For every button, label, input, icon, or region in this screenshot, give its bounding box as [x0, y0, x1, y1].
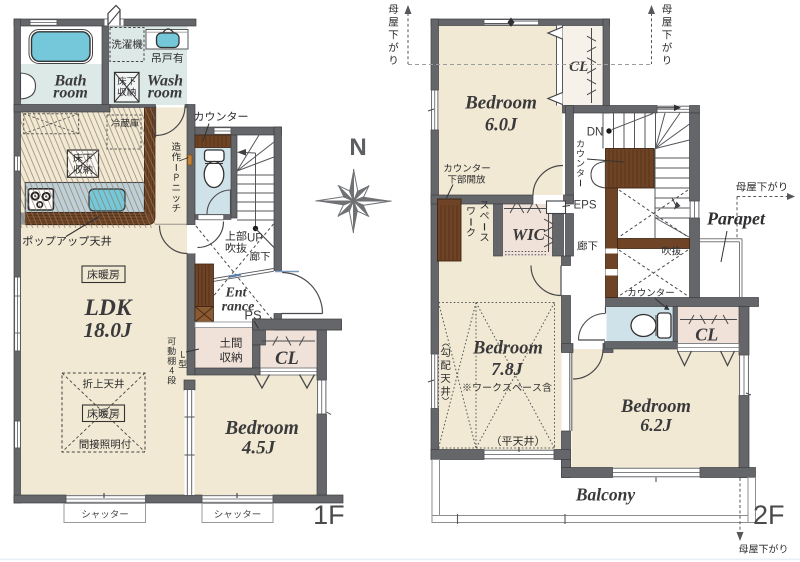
svg-text:1F: 1F — [313, 500, 345, 530]
svg-text:Bedroom: Bedroom — [464, 93, 537, 114]
svg-text:6.0J: 6.0J — [485, 116, 518, 136]
svg-text:room: room — [148, 85, 183, 102]
svg-text:Balcony: Balcony — [575, 485, 636, 505]
svg-text:Ent: Ent — [224, 286, 247, 301]
svg-text:Bedroom: Bedroom — [620, 397, 691, 417]
svg-text:Bedroom: Bedroom — [472, 339, 543, 359]
svg-text:4.5J: 4.5J — [241, 438, 276, 459]
svg-text:6.2J: 6.2J — [640, 415, 673, 435]
svg-text:2F: 2F — [753, 500, 785, 530]
svg-text:DN: DN — [587, 127, 604, 139]
svg-text:WIC: WIC — [512, 225, 546, 244]
svg-text:room: room — [53, 85, 88, 102]
svg-text:Parapet: Parapet — [706, 209, 766, 229]
svg-text:N: N — [349, 134, 366, 161]
svg-text:Bedroom: Bedroom — [224, 418, 299, 439]
svg-text:CL: CL — [275, 349, 299, 369]
svg-text:PS: PS — [244, 308, 262, 323]
svg-text:CL: CL — [695, 325, 718, 345]
svg-text:7.8J: 7.8J — [491, 359, 524, 379]
svg-text:18.0J: 18.0J — [83, 318, 133, 342]
svg-text:EPS: EPS — [573, 200, 596, 212]
svg-text:CL: CL — [569, 59, 588, 75]
